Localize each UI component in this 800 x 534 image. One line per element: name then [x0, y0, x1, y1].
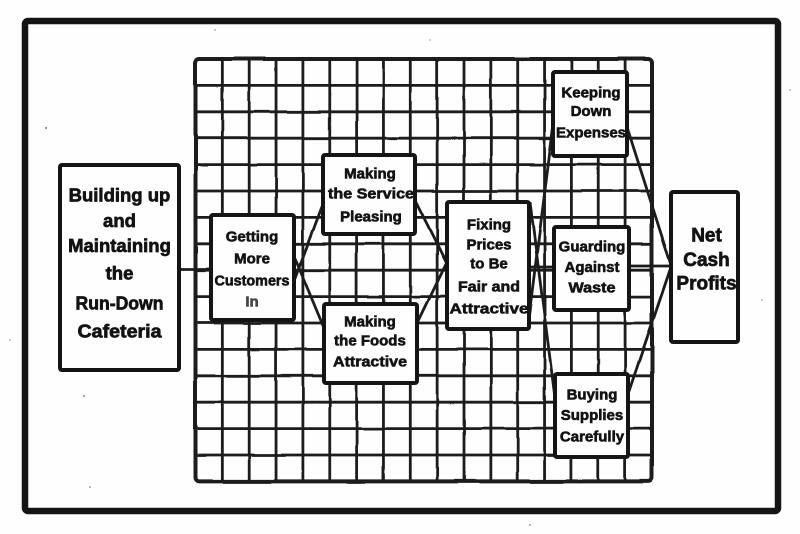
- svg-text:Net: Net: [691, 226, 722, 247]
- svg-text:Building up: Building up: [69, 185, 171, 206]
- svg-text:Fair and: Fair and: [458, 279, 520, 296]
- svg-text:Against: Against: [564, 259, 619, 276]
- svg-text:Guarding: Guarding: [559, 239, 626, 256]
- svg-text:Maintaining: Maintaining: [68, 235, 171, 256]
- svg-text:Prices: Prices: [466, 237, 511, 254]
- svg-text:Profits: Profits: [676, 273, 736, 294]
- svg-text:Keeping: Keeping: [561, 85, 620, 102]
- svg-text:Making: Making: [344, 314, 396, 331]
- svg-text:the Service: the Service: [328, 186, 414, 203]
- svg-text:Customers: Customers: [215, 273, 290, 290]
- svg-text:Cash: Cash: [683, 250, 729, 271]
- svg-text:Making: Making: [344, 166, 396, 183]
- svg-text:In: In: [245, 294, 258, 311]
- svg-text:Run-Down: Run-Down: [76, 293, 164, 314]
- svg-text:and: and: [103, 210, 136, 231]
- svg-text:Cafeteria: Cafeteria: [78, 321, 163, 342]
- svg-text:the: the: [106, 263, 134, 284]
- svg-text:Carefully: Carefully: [560, 429, 625, 446]
- svg-text:Attractive: Attractive: [450, 301, 529, 318]
- svg-text:Buying: Buying: [567, 387, 618, 404]
- svg-text:to Be: to Be: [470, 256, 508, 273]
- svg-text:Getting: Getting: [226, 229, 279, 246]
- svg-text:Down: Down: [571, 103, 612, 120]
- svg-text:Pleasing: Pleasing: [340, 209, 402, 226]
- svg-text:Waste: Waste: [569, 280, 616, 297]
- svg-text:Supplies: Supplies: [561, 407, 624, 424]
- svg-text:Fixing: Fixing: [467, 217, 511, 234]
- svg-text:Attractive: Attractive: [333, 354, 407, 371]
- svg-text:More: More: [234, 251, 270, 268]
- svg-text:the Foods: the Foods: [334, 333, 406, 350]
- svg-text:Expenses: Expenses: [556, 125, 626, 142]
